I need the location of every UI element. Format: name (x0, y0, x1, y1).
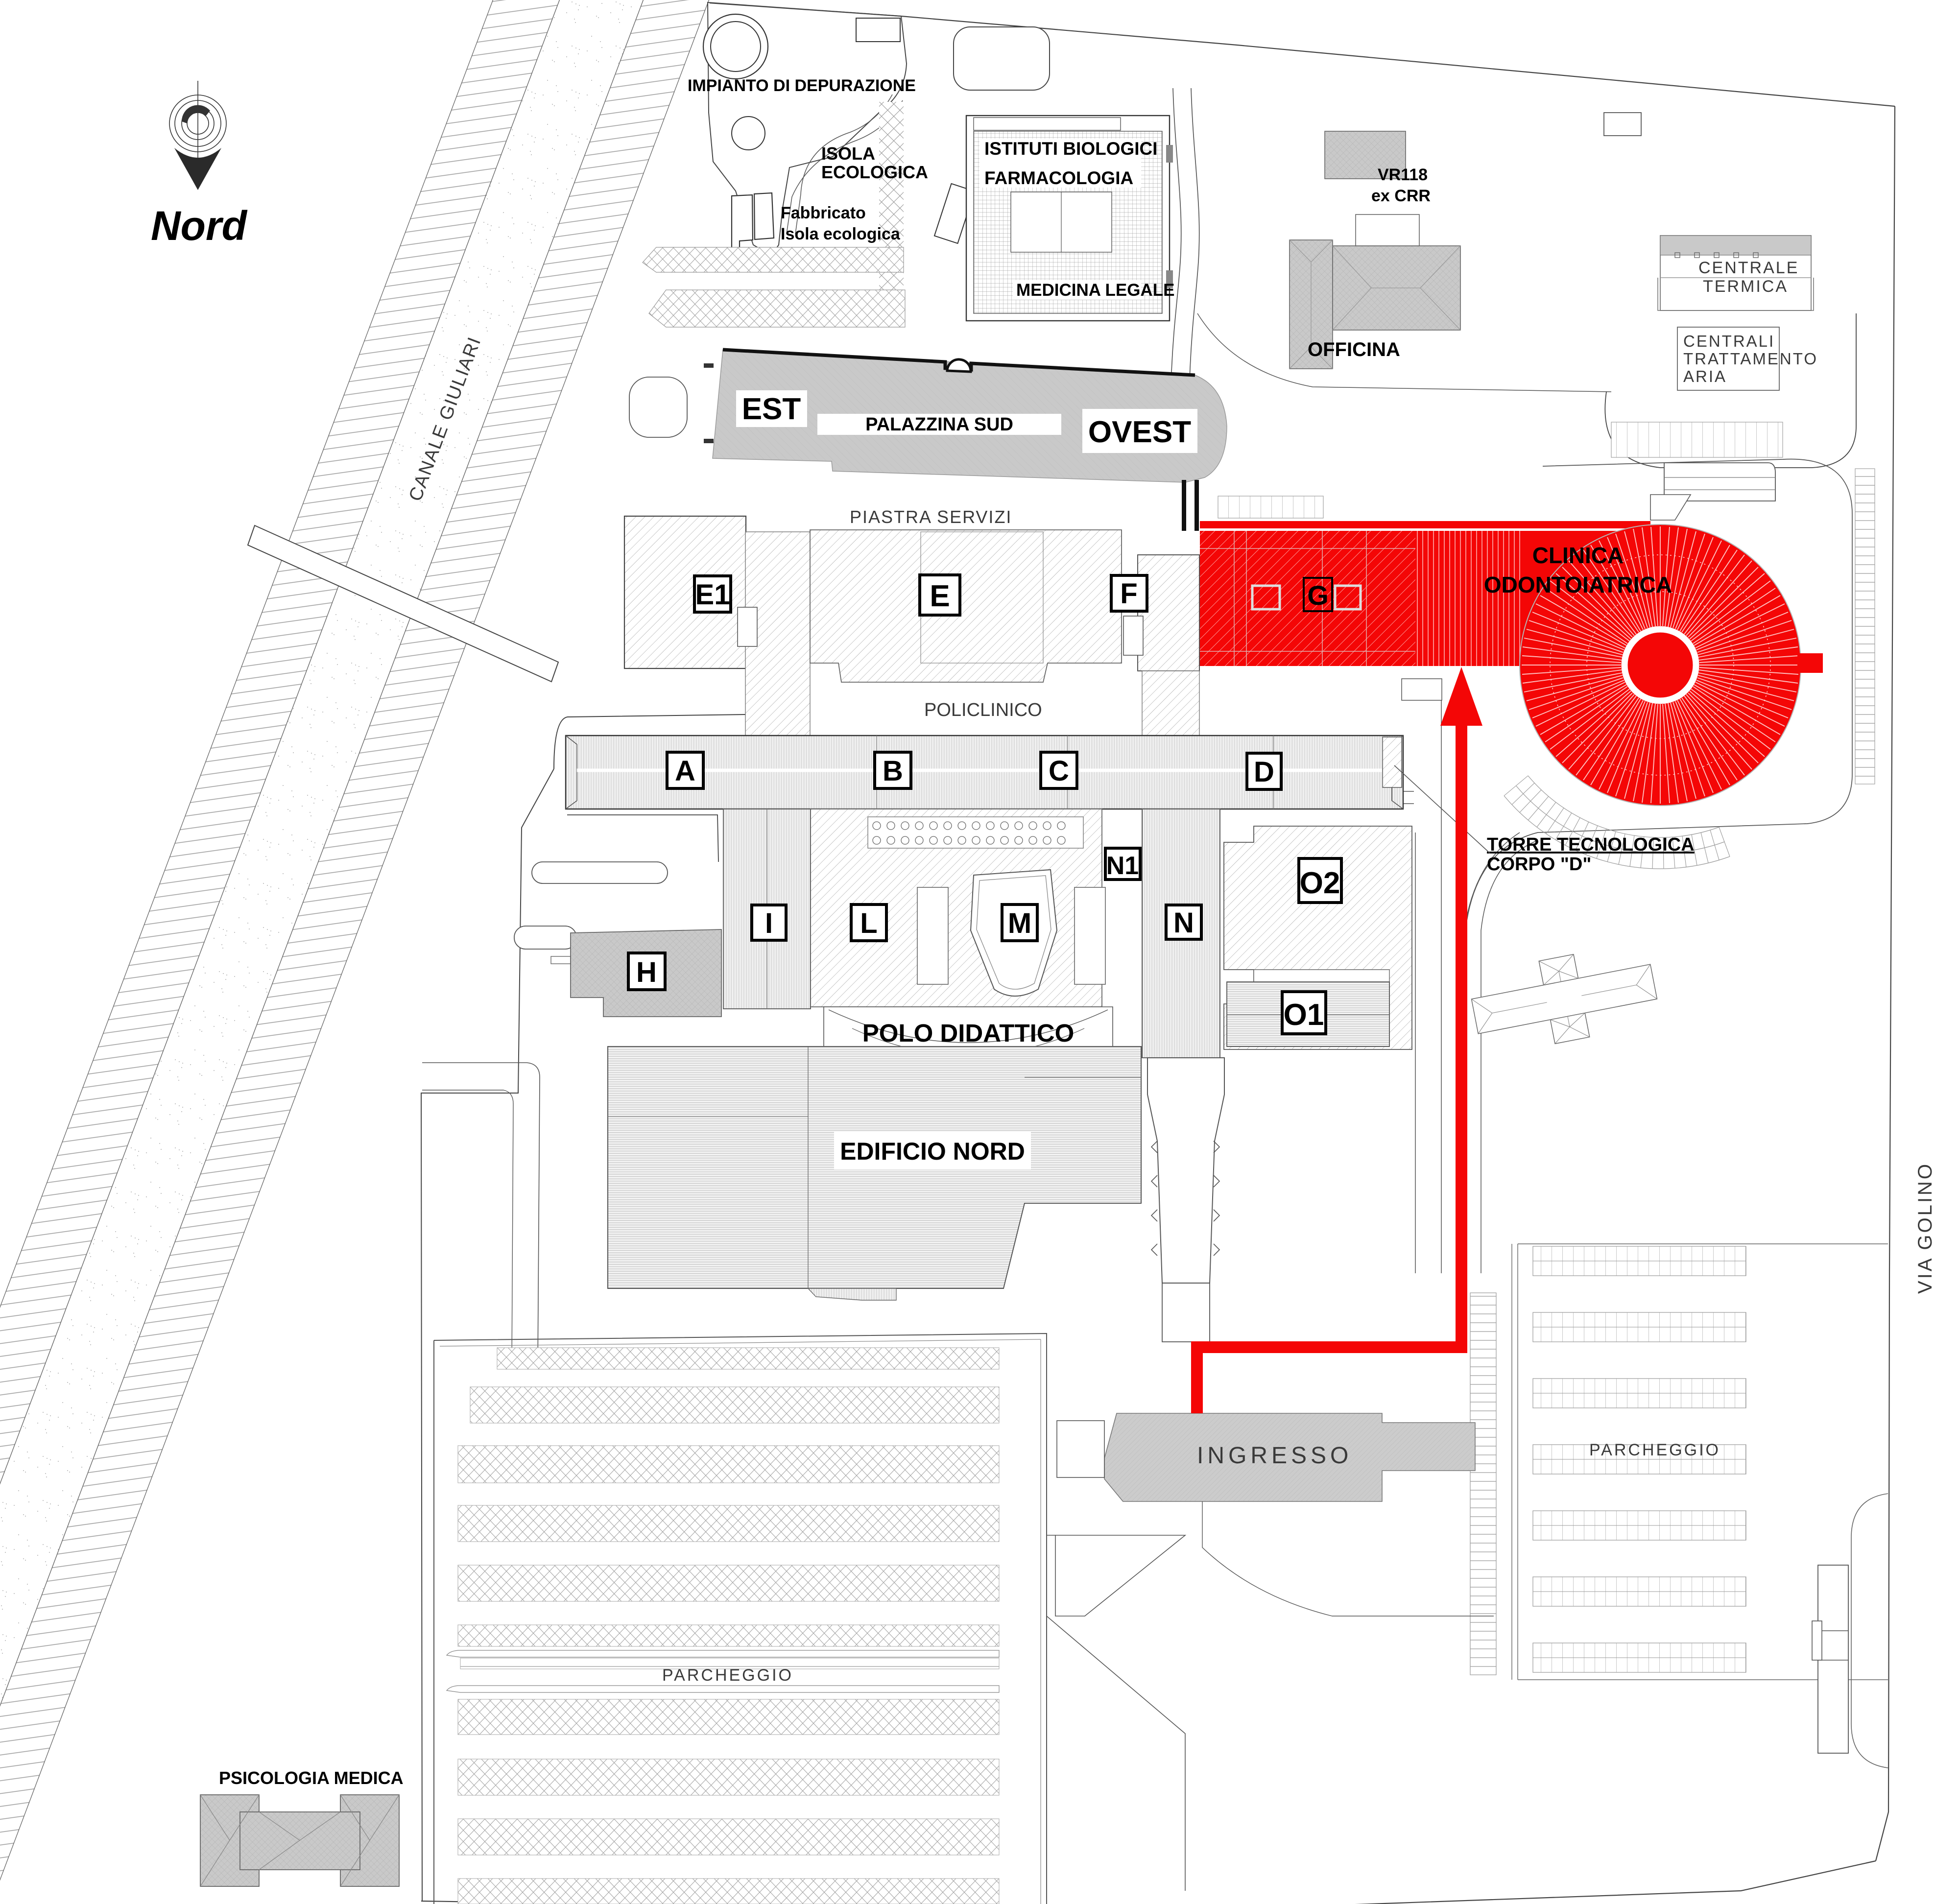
svg-text:ex CRR: ex CRR (1371, 187, 1431, 205)
svg-text:Isola ecologica: Isola ecologica (781, 225, 901, 243)
svg-text:TERMICA: TERMICA (1703, 277, 1788, 296)
svg-text:Nord: Nord (151, 203, 248, 249)
svg-text:CORPO "D": CORPO "D" (1487, 854, 1591, 875)
svg-text:B: B (883, 755, 903, 787)
svg-text:MEDICINA LEGALE: MEDICINA LEGALE (1016, 281, 1174, 300)
svg-text:G: G (1307, 580, 1329, 611)
svg-text:POLICLINICO: POLICLINICO (924, 700, 1042, 720)
svg-text:D: D (1254, 756, 1274, 788)
svg-text:ECOLOGICA: ECOLOGICA (821, 162, 928, 182)
svg-text:FARMACOLOGIA: FARMACOLOGIA (984, 168, 1133, 188)
svg-text:OFFICINA: OFFICINA (1308, 339, 1400, 360)
svg-text:O1: O1 (1284, 998, 1324, 1032)
svg-text:H: H (636, 956, 657, 988)
svg-text:F: F (1120, 578, 1137, 610)
svg-text:M: M (1008, 907, 1031, 939)
svg-text:ARIA: ARIA (1683, 367, 1727, 385)
svg-text:TRATTAMENTO: TRATTAMENTO (1683, 350, 1818, 368)
svg-text:PSICOLOGIA MEDICA: PSICOLOGIA MEDICA (219, 1768, 404, 1788)
svg-text:PIASTRA SERVIZI: PIASTRA SERVIZI (850, 507, 1012, 527)
svg-text:N: N (1173, 907, 1194, 939)
svg-text:VR118: VR118 (1378, 166, 1428, 184)
svg-text:OVEST: OVEST (1088, 415, 1191, 449)
svg-text:L: L (860, 907, 877, 939)
svg-text:EST: EST (742, 392, 801, 426)
svg-text:PALAZZINA SUD: PALAZZINA SUD (865, 414, 1013, 435)
svg-text:VIA GOLINO: VIA GOLINO (1914, 1162, 1936, 1294)
svg-text:IMPIANTO DI DEPURAZIONE: IMPIANTO DI DEPURAZIONE (688, 76, 916, 95)
svg-text:POLO DIDATTICO: POLO DIDATTICO (862, 1019, 1075, 1047)
svg-text:E1: E1 (695, 579, 730, 611)
svg-text:ISOLA: ISOLA (821, 143, 875, 164)
svg-text:EDIFICIO NORD: EDIFICIO NORD (840, 1138, 1025, 1165)
svg-text:N1: N1 (1106, 852, 1139, 880)
svg-text:I: I (765, 907, 773, 939)
svg-text:ODONTOIATRICA: ODONTOIATRICA (1484, 572, 1672, 597)
svg-text:TORRE TECNOLOGICA: TORRE TECNOLOGICA (1487, 834, 1695, 855)
svg-text:PARCHEGGIO: PARCHEGGIO (1589, 1441, 1720, 1459)
svg-text:E: E (930, 579, 950, 613)
svg-text:PARCHEGGIO: PARCHEGGIO (662, 1666, 793, 1685)
svg-text:ISTITUTI BIOLOGICI: ISTITUTI BIOLOGICI (984, 139, 1158, 159)
svg-text:CENTRALE: CENTRALE (1698, 259, 1799, 277)
svg-text:O2: O2 (1300, 866, 1340, 900)
svg-text:Fabbricato: Fabbricato (781, 204, 866, 222)
svg-text:A: A (675, 755, 695, 787)
svg-text:C: C (1049, 755, 1069, 787)
svg-text:INGRESSO: INGRESSO (1197, 1443, 1352, 1469)
svg-text:CENTRALI: CENTRALI (1683, 332, 1775, 350)
svg-text:CLINICA: CLINICA (1532, 543, 1624, 568)
